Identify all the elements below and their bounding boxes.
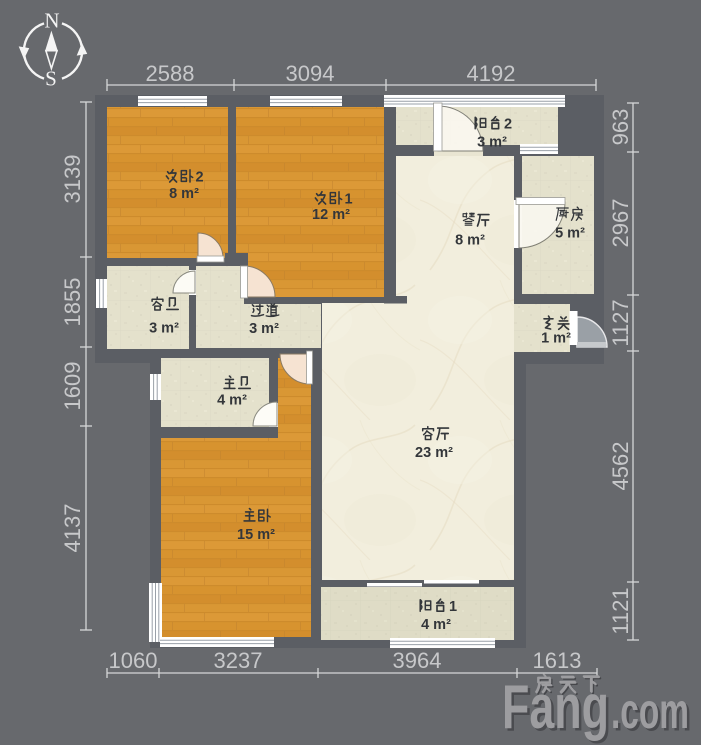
svg-text:3139: 3139 bbox=[60, 155, 85, 204]
svg-text:4 m²: 4 m² bbox=[217, 393, 247, 409]
svg-text:1613: 1613 bbox=[533, 648, 582, 673]
svg-text:N: N bbox=[44, 9, 59, 33]
svg-text:3964: 3964 bbox=[393, 648, 442, 673]
svg-text:1 m²: 1 m² bbox=[541, 331, 571, 347]
svg-text:4137: 4137 bbox=[60, 504, 85, 553]
svg-text:8 m²: 8 m² bbox=[455, 233, 485, 249]
svg-text:5 m²: 5 m² bbox=[555, 226, 585, 242]
svg-text:963: 963 bbox=[608, 109, 633, 146]
svg-text:3 m²: 3 m² bbox=[149, 321, 179, 337]
svg-text:2967: 2967 bbox=[608, 199, 633, 248]
svg-text:2: 2 bbox=[196, 170, 204, 186]
svg-text:4192: 4192 bbox=[467, 61, 516, 86]
svg-text:2: 2 bbox=[504, 117, 512, 133]
svg-text:23 m²: 23 m² bbox=[415, 445, 453, 461]
svg-text:S: S bbox=[45, 67, 57, 91]
svg-text:1855: 1855 bbox=[60, 278, 85, 327]
svg-text:.com: .com bbox=[611, 683, 689, 739]
svg-text:3 m²: 3 m² bbox=[477, 135, 507, 151]
svg-text:3094: 3094 bbox=[286, 61, 335, 86]
svg-text:2588: 2588 bbox=[146, 61, 195, 86]
svg-text:1127: 1127 bbox=[608, 299, 633, 346]
svg-text:4 m²: 4 m² bbox=[421, 617, 451, 633]
svg-text:3237: 3237 bbox=[214, 648, 263, 673]
svg-text:1609: 1609 bbox=[60, 362, 85, 411]
svg-text:1: 1 bbox=[345, 192, 353, 208]
svg-text:8 m²: 8 m² bbox=[169, 186, 199, 202]
svg-text:1: 1 bbox=[449, 599, 457, 615]
svg-text:3 m²: 3 m² bbox=[249, 321, 279, 337]
svg-text:1121: 1121 bbox=[608, 587, 633, 634]
svg-text:4562: 4562 bbox=[608, 442, 633, 491]
svg-text:1060: 1060 bbox=[109, 648, 158, 673]
svg-text:15 m²: 15 m² bbox=[237, 527, 275, 543]
svg-text:12 m²: 12 m² bbox=[312, 207, 350, 223]
